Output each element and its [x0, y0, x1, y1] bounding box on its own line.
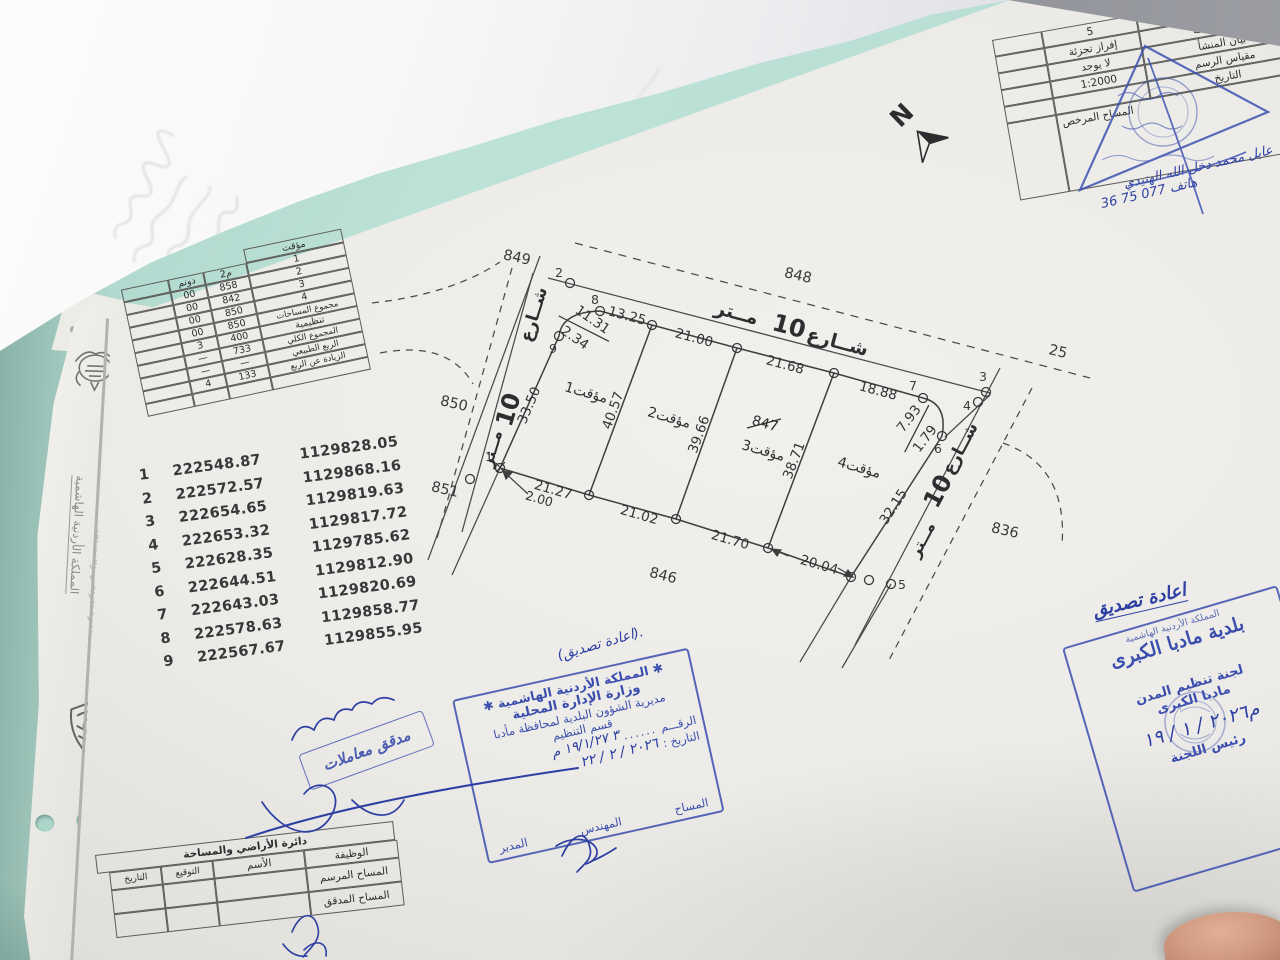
dim-label: 21.68 [764, 352, 805, 377]
street-width: 10 [769, 308, 809, 344]
point-id: 9 [163, 650, 199, 670]
dim-label: 21.02 [618, 502, 660, 528]
point-id: 2 [141, 487, 177, 507]
coordinate-list: 1222548.871129828.05 2222572.571129868.1… [138, 429, 465, 678]
parcel-label: 2مؤقت [646, 404, 693, 432]
plot-number: 850 [439, 393, 470, 415]
street-left-boundary-extension [452, 468, 500, 575]
dim-label: 18.88 [857, 378, 898, 403]
dim-label: 38.71 [780, 440, 809, 482]
title-director: المدير [498, 835, 529, 855]
point-label: 4 [963, 398, 971, 413]
plot-number: 25 [1047, 342, 1069, 362]
north-letter: N [884, 98, 919, 133]
parcel-label: 1مؤقت [563, 379, 610, 407]
dim-label: 13.25 [606, 303, 647, 328]
dim-label: 20.04 [798, 552, 840, 578]
point-label: 3 [979, 369, 987, 384]
street-right-west-lower [800, 577, 851, 662]
old-plot-number-struck: 847 [750, 413, 780, 435]
point-id: 1 [138, 464, 174, 484]
corner-849-dashed-arc [372, 262, 500, 303]
plot-number: 849 [502, 247, 532, 268]
point-label: 2 [555, 265, 563, 280]
curve-dim-fraction: 11.31 2.34 [549, 296, 618, 362]
street-name: شــارع [804, 323, 870, 360]
plot-number: 836 [990, 520, 1021, 542]
photographed-survey-document: المملكة الأردنية الهاشمية دائرة الأراضي … [0, 0, 1280, 960]
point-label: 8 [591, 292, 599, 307]
plot-number: 848 [783, 265, 814, 287]
point-label: 5 [898, 577, 906, 592]
point-id: 4 [147, 533, 183, 553]
dim-label: 7.93 [894, 402, 925, 436]
corner-850-dashed-arc [380, 350, 473, 384]
title-surveyor: المساح [673, 795, 710, 816]
street-top-dashed-line [575, 243, 1090, 378]
point-id: 6 [153, 580, 189, 600]
point-id: 8 [159, 627, 195, 647]
street-unit: مــتر [711, 297, 760, 330]
street-name: شــارع [939, 419, 983, 478]
title-engineer: المهندس [579, 814, 623, 837]
dim-label: 21.70 [709, 527, 751, 553]
point-id: 5 [150, 557, 186, 577]
plot-number: 846 [648, 565, 679, 587]
point-label: 7 [909, 378, 917, 393]
street-right-center-lower [842, 584, 891, 668]
point-label: 6 [934, 441, 942, 456]
dimension-labels: 13.25 21.00 21.68 18.88 21.27 21.02 21.7… [514, 296, 949, 578]
point-id: 3 [144, 510, 180, 530]
street-right-east-edge [855, 368, 1000, 645]
north-arrow-icon: N [879, 92, 949, 162]
parcel-label: 3مؤقت [740, 437, 787, 465]
dim-label: 21.00 [673, 325, 714, 350]
parcel-label: 4مؤقت [836, 454, 883, 482]
dim-label: 2.34 [558, 323, 592, 353]
point-id: 7 [156, 603, 192, 623]
point-label: 9 [549, 341, 557, 356]
dim-label: 32.15 [876, 486, 910, 527]
street-top-north-edge [548, 278, 990, 393]
